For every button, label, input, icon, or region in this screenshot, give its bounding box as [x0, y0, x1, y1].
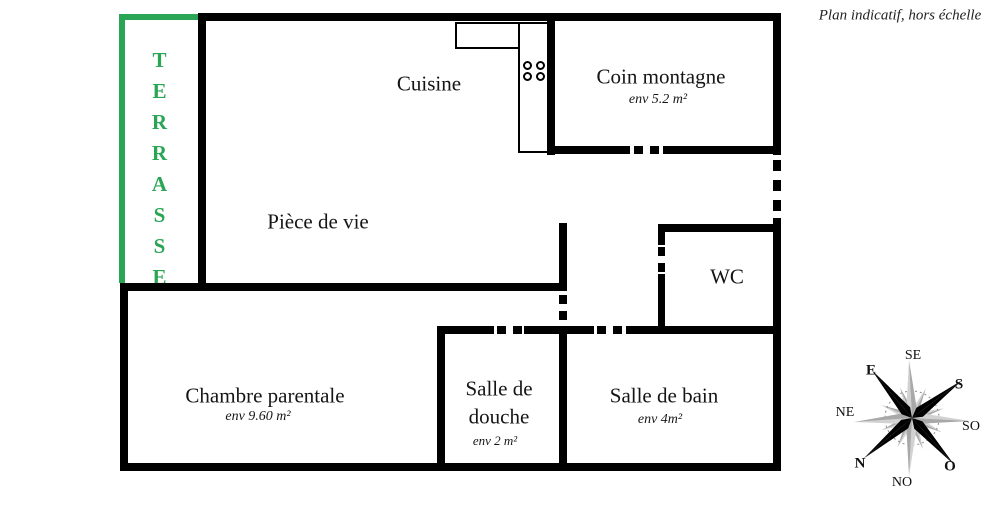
kitchen-counter-vertical — [518, 22, 549, 153]
compass-label-e: E — [866, 363, 876, 380]
wall-bath-top-2 — [524, 326, 594, 334]
wall-wc-top — [658, 224, 781, 232]
wall-central-door-dashed — [559, 295, 567, 323]
room-label-cuisine: Cuisine — [397, 72, 461, 97]
stove-burner-icon — [523, 72, 532, 81]
wall-outer-top — [198, 13, 781, 21]
wall-outer-right-lower — [773, 218, 781, 471]
room-label-salle-de-douche: Salle de douche — [449, 375, 549, 430]
wall-bain-door-dashed — [597, 326, 623, 334]
stove-burner-icon — [536, 61, 545, 70]
wall-outer-right-door-dashed — [773, 160, 781, 218]
wall-wc-door-dashed — [658, 247, 665, 272]
wall-outer-right-upper — [773, 13, 781, 155]
wall-central-upper — [559, 223, 567, 291]
wall-douche-door-dashed — [497, 326, 522, 334]
wall-wc-left-lower — [658, 274, 665, 333]
plan-disclaimer-text: Plan indicatif, hors échelle — [819, 8, 981, 25]
wall-wc-left-upper — [658, 224, 665, 245]
compass-label-ne: NE — [836, 405, 855, 421]
floor-plan: Plan indicatif, hors échelle TERRASSE Cu… — [0, 0, 998, 505]
wall-bath-top-1 — [437, 326, 494, 334]
compass-label-o: O — [944, 459, 956, 476]
wall-piecedevie-chambre — [120, 283, 567, 291]
wall-coin-bottom-right — [663, 146, 781, 154]
wall-outer-bottom — [120, 463, 781, 471]
room-area-coin-montagne: env 5.2 m² — [629, 92, 687, 108]
wall-douche-bain — [559, 326, 567, 471]
compass-label-so: SO — [962, 419, 980, 435]
wall-coin-bottom-left — [547, 146, 630, 154]
room-label-piece-de-vie: Pièce de vie — [267, 210, 368, 235]
room-label-salle-de-bain: Salle de bain — [610, 384, 718, 409]
wall-coin-bottom-door-dashed — [634, 146, 660, 154]
wall-outer-left-lower — [120, 283, 128, 471]
wall-bath-top-3 — [626, 326, 781, 334]
room-label-chambre-parentale: Chambre parentale — [185, 384, 344, 409]
room-area-salle-de-douche: env 2 m² — [473, 433, 517, 449]
room-label-wc: WC — [710, 265, 744, 290]
wall-terrace-right — [198, 13, 206, 285]
compass-label-se: SE — [905, 348, 921, 364]
room-label-coin-montagne: Coin montagne — [597, 65, 726, 90]
terrace-label: TERRASSE — [147, 48, 172, 296]
wall-douche-left — [437, 326, 445, 471]
stove-burner-icon — [536, 72, 545, 81]
stove-burner-icon — [523, 61, 532, 70]
compass-label-n: N — [855, 456, 866, 473]
room-area-chambre-parentale: env 9.60 m² — [225, 409, 290, 425]
room-area-salle-de-bain: env 4m² — [638, 412, 682, 428]
compass-label-s: S — [955, 377, 963, 394]
compass-label-no: NO — [892, 475, 912, 491]
